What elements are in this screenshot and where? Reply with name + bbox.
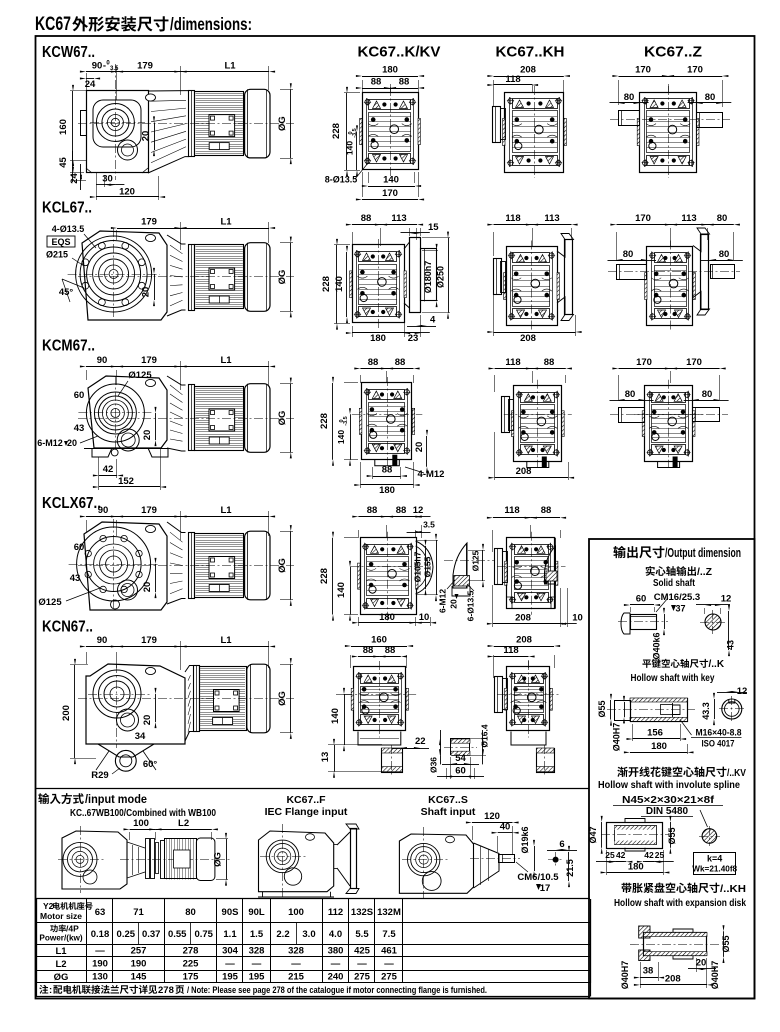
svg-text:60: 60 bbox=[74, 542, 85, 553]
svg-text:6-Ø13.5: 6-Ø13.5 bbox=[466, 590, 476, 621]
svg-text:2.2: 2.2 bbox=[276, 929, 289, 940]
svg-text:37: 37 bbox=[675, 604, 685, 614]
svg-text:3.5: 3.5 bbox=[423, 520, 435, 530]
svg-text:20: 20 bbox=[141, 131, 152, 142]
svg-text:88: 88 bbox=[361, 213, 372, 224]
svg-text:80: 80 bbox=[719, 249, 730, 260]
svg-text:170: 170 bbox=[686, 357, 702, 368]
svg-text:5.5: 5.5 bbox=[355, 929, 369, 940]
svg-text:140: 140 bbox=[336, 430, 346, 444]
svg-text:1.5: 1.5 bbox=[250, 929, 264, 940]
svg-text:Ø36: Ø36 bbox=[429, 757, 439, 773]
svg-text:140: 140 bbox=[330, 708, 341, 724]
svg-text:0.25: 0.25 bbox=[117, 929, 136, 940]
svg-text:Ø55: Ø55 bbox=[597, 700, 607, 717]
svg-text:60: 60 bbox=[74, 390, 85, 401]
svg-text:L2: L2 bbox=[178, 818, 189, 829]
svg-text:90S: 90S bbox=[222, 907, 239, 918]
svg-text:180: 180 bbox=[628, 862, 644, 873]
svg-text:228: 228 bbox=[319, 413, 330, 429]
svg-text:/..K: /..K bbox=[709, 659, 725, 670]
svg-text:175: 175 bbox=[183, 972, 200, 983]
svg-text:170: 170 bbox=[636, 357, 652, 368]
svg-text:ISO 4017: ISO 4017 bbox=[702, 739, 735, 750]
svg-text:80: 80 bbox=[717, 213, 728, 224]
svg-text:208: 208 bbox=[516, 466, 532, 477]
svg-text:88: 88 bbox=[541, 505, 552, 516]
svg-text:0.75: 0.75 bbox=[194, 929, 213, 940]
svg-text:228: 228 bbox=[321, 276, 332, 292]
svg-text:12: 12 bbox=[721, 594, 732, 605]
svg-text:3.0: 3.0 bbox=[302, 929, 315, 940]
svg-text:80: 80 bbox=[623, 249, 634, 260]
svg-text:461: 461 bbox=[381, 946, 398, 957]
svg-text:304: 304 bbox=[222, 946, 239, 957]
svg-text:42: 42 bbox=[644, 850, 654, 860]
svg-text:EQS: EQS bbox=[51, 237, 70, 247]
svg-text:180: 180 bbox=[651, 741, 667, 752]
svg-text:140: 140 bbox=[334, 276, 345, 292]
svg-text:KC67..S: KC67..S bbox=[428, 794, 468, 806]
svg-text:200: 200 bbox=[61, 705, 72, 721]
svg-text:170: 170 bbox=[382, 188, 398, 199]
svg-text:118: 118 bbox=[505, 357, 520, 368]
svg-text:ØG: ØG bbox=[277, 558, 288, 573]
svg-text:145: 145 bbox=[131, 972, 148, 983]
svg-text:190: 190 bbox=[131, 959, 147, 970]
svg-text:4.0: 4.0 bbox=[329, 929, 342, 940]
svg-text::: : bbox=[49, 985, 52, 996]
svg-text:20: 20 bbox=[142, 715, 153, 726]
svg-text:112: 112 bbox=[328, 907, 343, 918]
svg-text:100: 100 bbox=[133, 818, 149, 829]
svg-text:3.5: 3.5 bbox=[110, 66, 119, 72]
svg-text:KCM67..: KCM67.. bbox=[42, 338, 95, 355]
svg-text:208: 208 bbox=[516, 635, 532, 646]
svg-text:43: 43 bbox=[726, 640, 736, 650]
svg-text:0.37: 0.37 bbox=[142, 929, 161, 940]
svg-text:88: 88 bbox=[371, 77, 382, 88]
svg-text:156: 156 bbox=[647, 728, 663, 739]
svg-text:180: 180 bbox=[370, 333, 386, 344]
svg-text:-3.5: -3.5 bbox=[352, 128, 358, 137]
svg-text:Hollow shaft with expansion di: Hollow shaft with expansion disk bbox=[614, 897, 746, 909]
svg-text:Hollow shaft with key: Hollow shaft with key bbox=[631, 672, 715, 684]
svg-text:160: 160 bbox=[58, 119, 69, 135]
svg-text:/ Note: Please see page 278 of: / Note: Please see page 278 of the catal… bbox=[187, 985, 487, 996]
svg-text:12: 12 bbox=[413, 505, 424, 516]
svg-text:100: 100 bbox=[288, 907, 304, 918]
svg-text:M16×40-8.8: M16×40-8.8 bbox=[696, 728, 742, 739]
svg-text:208: 208 bbox=[520, 333, 536, 344]
svg-text:/..KV: /..KV bbox=[727, 767, 746, 779]
svg-text:195: 195 bbox=[222, 972, 239, 983]
svg-text:Ø16.4: Ø16.4 bbox=[480, 724, 490, 747]
svg-text:KCLX67..: KCLX67.. bbox=[42, 495, 101, 512]
svg-text:179: 179 bbox=[141, 505, 157, 516]
svg-text:179: 179 bbox=[137, 61, 153, 72]
svg-text:Y2: Y2 bbox=[43, 901, 54, 911]
svg-text:4: 4 bbox=[430, 315, 436, 326]
svg-text:L1: L1 bbox=[220, 355, 232, 366]
svg-text:/input mode: /input mode bbox=[85, 794, 147, 806]
svg-text:10: 10 bbox=[572, 613, 583, 624]
svg-text:88: 88 bbox=[399, 77, 410, 88]
svg-text:54: 54 bbox=[455, 753, 466, 764]
svg-text:225: 225 bbox=[183, 959, 200, 970]
svg-text:7.5: 7.5 bbox=[382, 929, 396, 940]
svg-text:80: 80 bbox=[624, 92, 635, 103]
svg-text:208: 208 bbox=[515, 613, 531, 624]
svg-text:63: 63 bbox=[95, 907, 106, 918]
svg-text:Ø47: Ø47 bbox=[588, 826, 598, 843]
svg-text:38: 38 bbox=[643, 966, 654, 977]
svg-text:190: 190 bbox=[92, 959, 108, 970]
svg-text:Ø55: Ø55 bbox=[721, 935, 731, 952]
svg-text:118: 118 bbox=[503, 645, 518, 656]
svg-text:Ø40H7: Ø40H7 bbox=[620, 961, 630, 990]
svg-text:Hollow shaft with involute spl: Hollow shaft with involute spline bbox=[598, 779, 740, 791]
svg-text:60°: 60° bbox=[143, 759, 158, 770]
svg-text:170: 170 bbox=[635, 213, 651, 224]
svg-text:208: 208 bbox=[665, 974, 681, 985]
svg-text:132S: 132S bbox=[351, 907, 373, 918]
svg-text:118: 118 bbox=[505, 213, 520, 224]
svg-text:180: 180 bbox=[382, 65, 398, 76]
svg-text:179: 179 bbox=[141, 217, 157, 228]
svg-text:Ø55: Ø55 bbox=[667, 827, 677, 844]
svg-text:DIN 5480: DIN 5480 bbox=[646, 806, 689, 817]
svg-text:N45×2×30×21×8f: N45×2×30×21×8f bbox=[622, 795, 715, 806]
svg-text:20: 20 bbox=[67, 438, 77, 448]
svg-text:/Output dimension: /Output dimension bbox=[665, 546, 741, 560]
svg-text:25: 25 bbox=[655, 850, 665, 860]
svg-text:88: 88 bbox=[382, 465, 393, 476]
svg-text:45°: 45° bbox=[59, 287, 74, 298]
svg-text:140: 140 bbox=[345, 141, 355, 155]
svg-text:88: 88 bbox=[368, 357, 379, 368]
svg-text:278: 278 bbox=[183, 946, 199, 957]
svg-text:88: 88 bbox=[544, 357, 555, 368]
svg-text:40: 40 bbox=[500, 822, 511, 833]
svg-text:CM16/25.3: CM16/25.3 bbox=[654, 592, 700, 603]
svg-text:Ø19k6: Ø19k6 bbox=[520, 826, 530, 853]
svg-text:34: 34 bbox=[135, 731, 146, 742]
svg-text:CM6/10.5: CM6/10.5 bbox=[517, 872, 559, 883]
svg-text:20: 20 bbox=[142, 430, 153, 441]
svg-text:/4P: /4P bbox=[66, 924, 79, 934]
svg-text:228: 228 bbox=[331, 123, 342, 139]
svg-text:88: 88 bbox=[395, 357, 406, 368]
svg-text:ØG: ØG bbox=[277, 270, 288, 285]
svg-text:275: 275 bbox=[354, 972, 371, 983]
svg-text:30: 30 bbox=[102, 174, 113, 185]
svg-text:20: 20 bbox=[449, 599, 459, 609]
svg-text:1.1: 1.1 bbox=[223, 929, 237, 940]
svg-text:21.5: 21.5 bbox=[565, 859, 575, 877]
svg-text:180: 180 bbox=[379, 485, 395, 496]
svg-text:71: 71 bbox=[133, 907, 144, 918]
svg-text:170: 170 bbox=[635, 65, 651, 76]
svg-text:4-Ø13.5: 4-Ø13.5 bbox=[52, 224, 85, 234]
svg-text:Ø250: Ø250 bbox=[436, 266, 446, 288]
svg-text:113: 113 bbox=[681, 213, 696, 224]
svg-text:208: 208 bbox=[520, 65, 536, 76]
svg-text:60: 60 bbox=[636, 594, 647, 605]
svg-text:IEC Flange input: IEC Flange input bbox=[265, 806, 348, 818]
svg-text:179: 179 bbox=[141, 635, 157, 646]
svg-text:24: 24 bbox=[85, 79, 96, 90]
svg-text:—: — bbox=[225, 959, 235, 970]
svg-text:120: 120 bbox=[484, 811, 500, 822]
svg-text:240: 240 bbox=[328, 972, 344, 983]
svg-text:Ø180h7: Ø180h7 bbox=[423, 261, 433, 294]
svg-text:—: — bbox=[384, 959, 394, 970]
svg-text:Ø215: Ø215 bbox=[46, 250, 68, 260]
svg-text:80: 80 bbox=[185, 907, 196, 918]
svg-text:88: 88 bbox=[396, 505, 407, 516]
svg-text:88: 88 bbox=[367, 505, 378, 516]
svg-text:Ø125: Ø125 bbox=[471, 550, 481, 571]
svg-text:328: 328 bbox=[249, 946, 265, 957]
svg-text:Ø125: Ø125 bbox=[38, 597, 62, 608]
svg-text:88: 88 bbox=[385, 645, 396, 656]
svg-text:132M: 132M bbox=[377, 907, 401, 918]
svg-text:ØG: ØG bbox=[277, 691, 288, 706]
svg-text:KC67..KH: KC67..KH bbox=[496, 44, 565, 61]
svg-text:20: 20 bbox=[141, 287, 152, 298]
svg-text:Ø40H7: Ø40H7 bbox=[612, 723, 622, 752]
svg-text:/..Z: /..Z bbox=[697, 567, 713, 578]
svg-text:90: 90 bbox=[98, 505, 109, 516]
svg-text:140: 140 bbox=[336, 582, 347, 598]
svg-text:6-M12: 6-M12 bbox=[37, 438, 63, 448]
svg-text:257: 257 bbox=[131, 946, 147, 957]
svg-text:80: 80 bbox=[705, 92, 716, 103]
svg-text:12: 12 bbox=[737, 686, 748, 697]
svg-text:6-M12: 6-M12 bbox=[438, 589, 448, 613]
svg-text:—: — bbox=[291, 959, 301, 970]
svg-text:20: 20 bbox=[142, 582, 153, 593]
svg-text:275: 275 bbox=[381, 972, 398, 983]
svg-text:20: 20 bbox=[696, 958, 707, 969]
svg-text:6: 6 bbox=[559, 839, 564, 850]
svg-text:4-M12: 4-M12 bbox=[418, 469, 445, 480]
svg-text:42: 42 bbox=[616, 850, 626, 860]
svg-text:KCN67..: KCN67.. bbox=[42, 619, 93, 636]
svg-text:Wk=21.40f8: Wk=21.40f8 bbox=[692, 865, 737, 874]
svg-text:ØG: ØG bbox=[277, 116, 288, 131]
svg-text:42: 42 bbox=[103, 464, 114, 475]
svg-text:17: 17 bbox=[540, 883, 551, 894]
svg-text:—: — bbox=[95, 946, 105, 957]
svg-text:L1: L1 bbox=[220, 635, 232, 646]
svg-text:L1: L1 bbox=[55, 946, 67, 957]
svg-text:KCW67..: KCW67.. bbox=[42, 44, 95, 61]
svg-text:118: 118 bbox=[504, 505, 519, 516]
svg-text:Ø155: Ø155 bbox=[423, 556, 433, 577]
svg-text:228: 228 bbox=[319, 568, 330, 584]
svg-text:120: 120 bbox=[119, 187, 135, 198]
svg-text:15: 15 bbox=[428, 222, 439, 233]
svg-text:45: 45 bbox=[58, 157, 69, 168]
svg-text:118: 118 bbox=[505, 74, 520, 85]
svg-text:43: 43 bbox=[70, 573, 81, 584]
svg-text:KC67..F: KC67..F bbox=[286, 794, 326, 806]
svg-text:8-Ø13.5: 8-Ø13.5 bbox=[325, 175, 358, 185]
svg-text:L1: L1 bbox=[224, 61, 236, 72]
svg-text:Ø40k6: Ø40k6 bbox=[652, 632, 662, 659]
svg-text:k=4: k=4 bbox=[707, 854, 722, 864]
svg-text:ØG: ØG bbox=[213, 852, 224, 867]
svg-text:195: 195 bbox=[249, 972, 266, 983]
svg-text:/dimensions:: /dimensions: bbox=[170, 14, 252, 34]
svg-text:24: 24 bbox=[69, 173, 80, 184]
svg-text:215: 215 bbox=[288, 972, 305, 983]
svg-text:13: 13 bbox=[320, 752, 331, 763]
svg-text:Motor size: Motor size bbox=[40, 911, 82, 921]
svg-text:278: 278 bbox=[158, 985, 174, 996]
svg-text:80: 80 bbox=[702, 389, 713, 400]
svg-text:ØG: ØG bbox=[277, 411, 288, 426]
svg-text:KC67..K/KV: KC67..K/KV bbox=[358, 44, 441, 61]
svg-text:90L: 90L bbox=[248, 907, 265, 918]
svg-text:152: 152 bbox=[118, 476, 134, 487]
svg-text:180: 180 bbox=[379, 612, 395, 623]
svg-text:L1: L1 bbox=[220, 505, 232, 516]
svg-text:22: 22 bbox=[415, 736, 426, 747]
svg-text:160: 160 bbox=[371, 635, 387, 646]
svg-text:R29: R29 bbox=[91, 770, 108, 781]
svg-text:—: — bbox=[357, 959, 367, 970]
svg-text:90: 90 bbox=[97, 355, 108, 366]
svg-text:80: 80 bbox=[625, 389, 636, 400]
svg-text:0.18: 0.18 bbox=[91, 929, 110, 940]
svg-text:179: 179 bbox=[141, 355, 157, 366]
svg-text:Solid shaft: Solid shaft bbox=[653, 578, 696, 589]
svg-text:Power/(kw): Power/(kw) bbox=[39, 934, 82, 943]
svg-text:10: 10 bbox=[419, 612, 430, 623]
svg-text:-3.5: -3.5 bbox=[343, 416, 349, 425]
svg-text:140: 140 bbox=[383, 175, 399, 186]
svg-text:KC67..Z: KC67..Z bbox=[644, 44, 702, 61]
svg-text:90: 90 bbox=[97, 635, 108, 646]
svg-text:0.55: 0.55 bbox=[168, 929, 187, 940]
svg-text:43: 43 bbox=[74, 423, 85, 434]
svg-text:ØG: ØG bbox=[54, 972, 69, 983]
svg-text:43.3: 43.3 bbox=[701, 702, 711, 720]
svg-text:60: 60 bbox=[455, 766, 466, 777]
svg-text:Shaft input: Shaft input bbox=[421, 806, 476, 818]
svg-text:KCL67..: KCL67.. bbox=[42, 200, 92, 217]
svg-text:113: 113 bbox=[391, 213, 406, 224]
svg-text:KC67: KC67 bbox=[35, 14, 71, 35]
svg-text:L1: L1 bbox=[220, 217, 232, 228]
svg-text:130: 130 bbox=[92, 972, 108, 983]
svg-text:—: — bbox=[252, 959, 262, 970]
svg-text:170: 170 bbox=[687, 65, 703, 76]
svg-text:—: — bbox=[331, 959, 341, 970]
svg-text:425: 425 bbox=[354, 946, 371, 957]
svg-text:90: 90 bbox=[92, 61, 103, 72]
svg-text:328: 328 bbox=[288, 946, 304, 957]
svg-text:L2: L2 bbox=[55, 959, 66, 970]
svg-text:/..KH: /..KH bbox=[720, 883, 746, 895]
svg-text:Ø105h7: Ø105h7 bbox=[413, 551, 423, 582]
svg-text:23: 23 bbox=[408, 333, 419, 344]
svg-text:380: 380 bbox=[328, 946, 344, 957]
svg-text:113: 113 bbox=[544, 213, 559, 224]
svg-text:20: 20 bbox=[414, 442, 425, 453]
svg-text:88: 88 bbox=[363, 645, 374, 656]
